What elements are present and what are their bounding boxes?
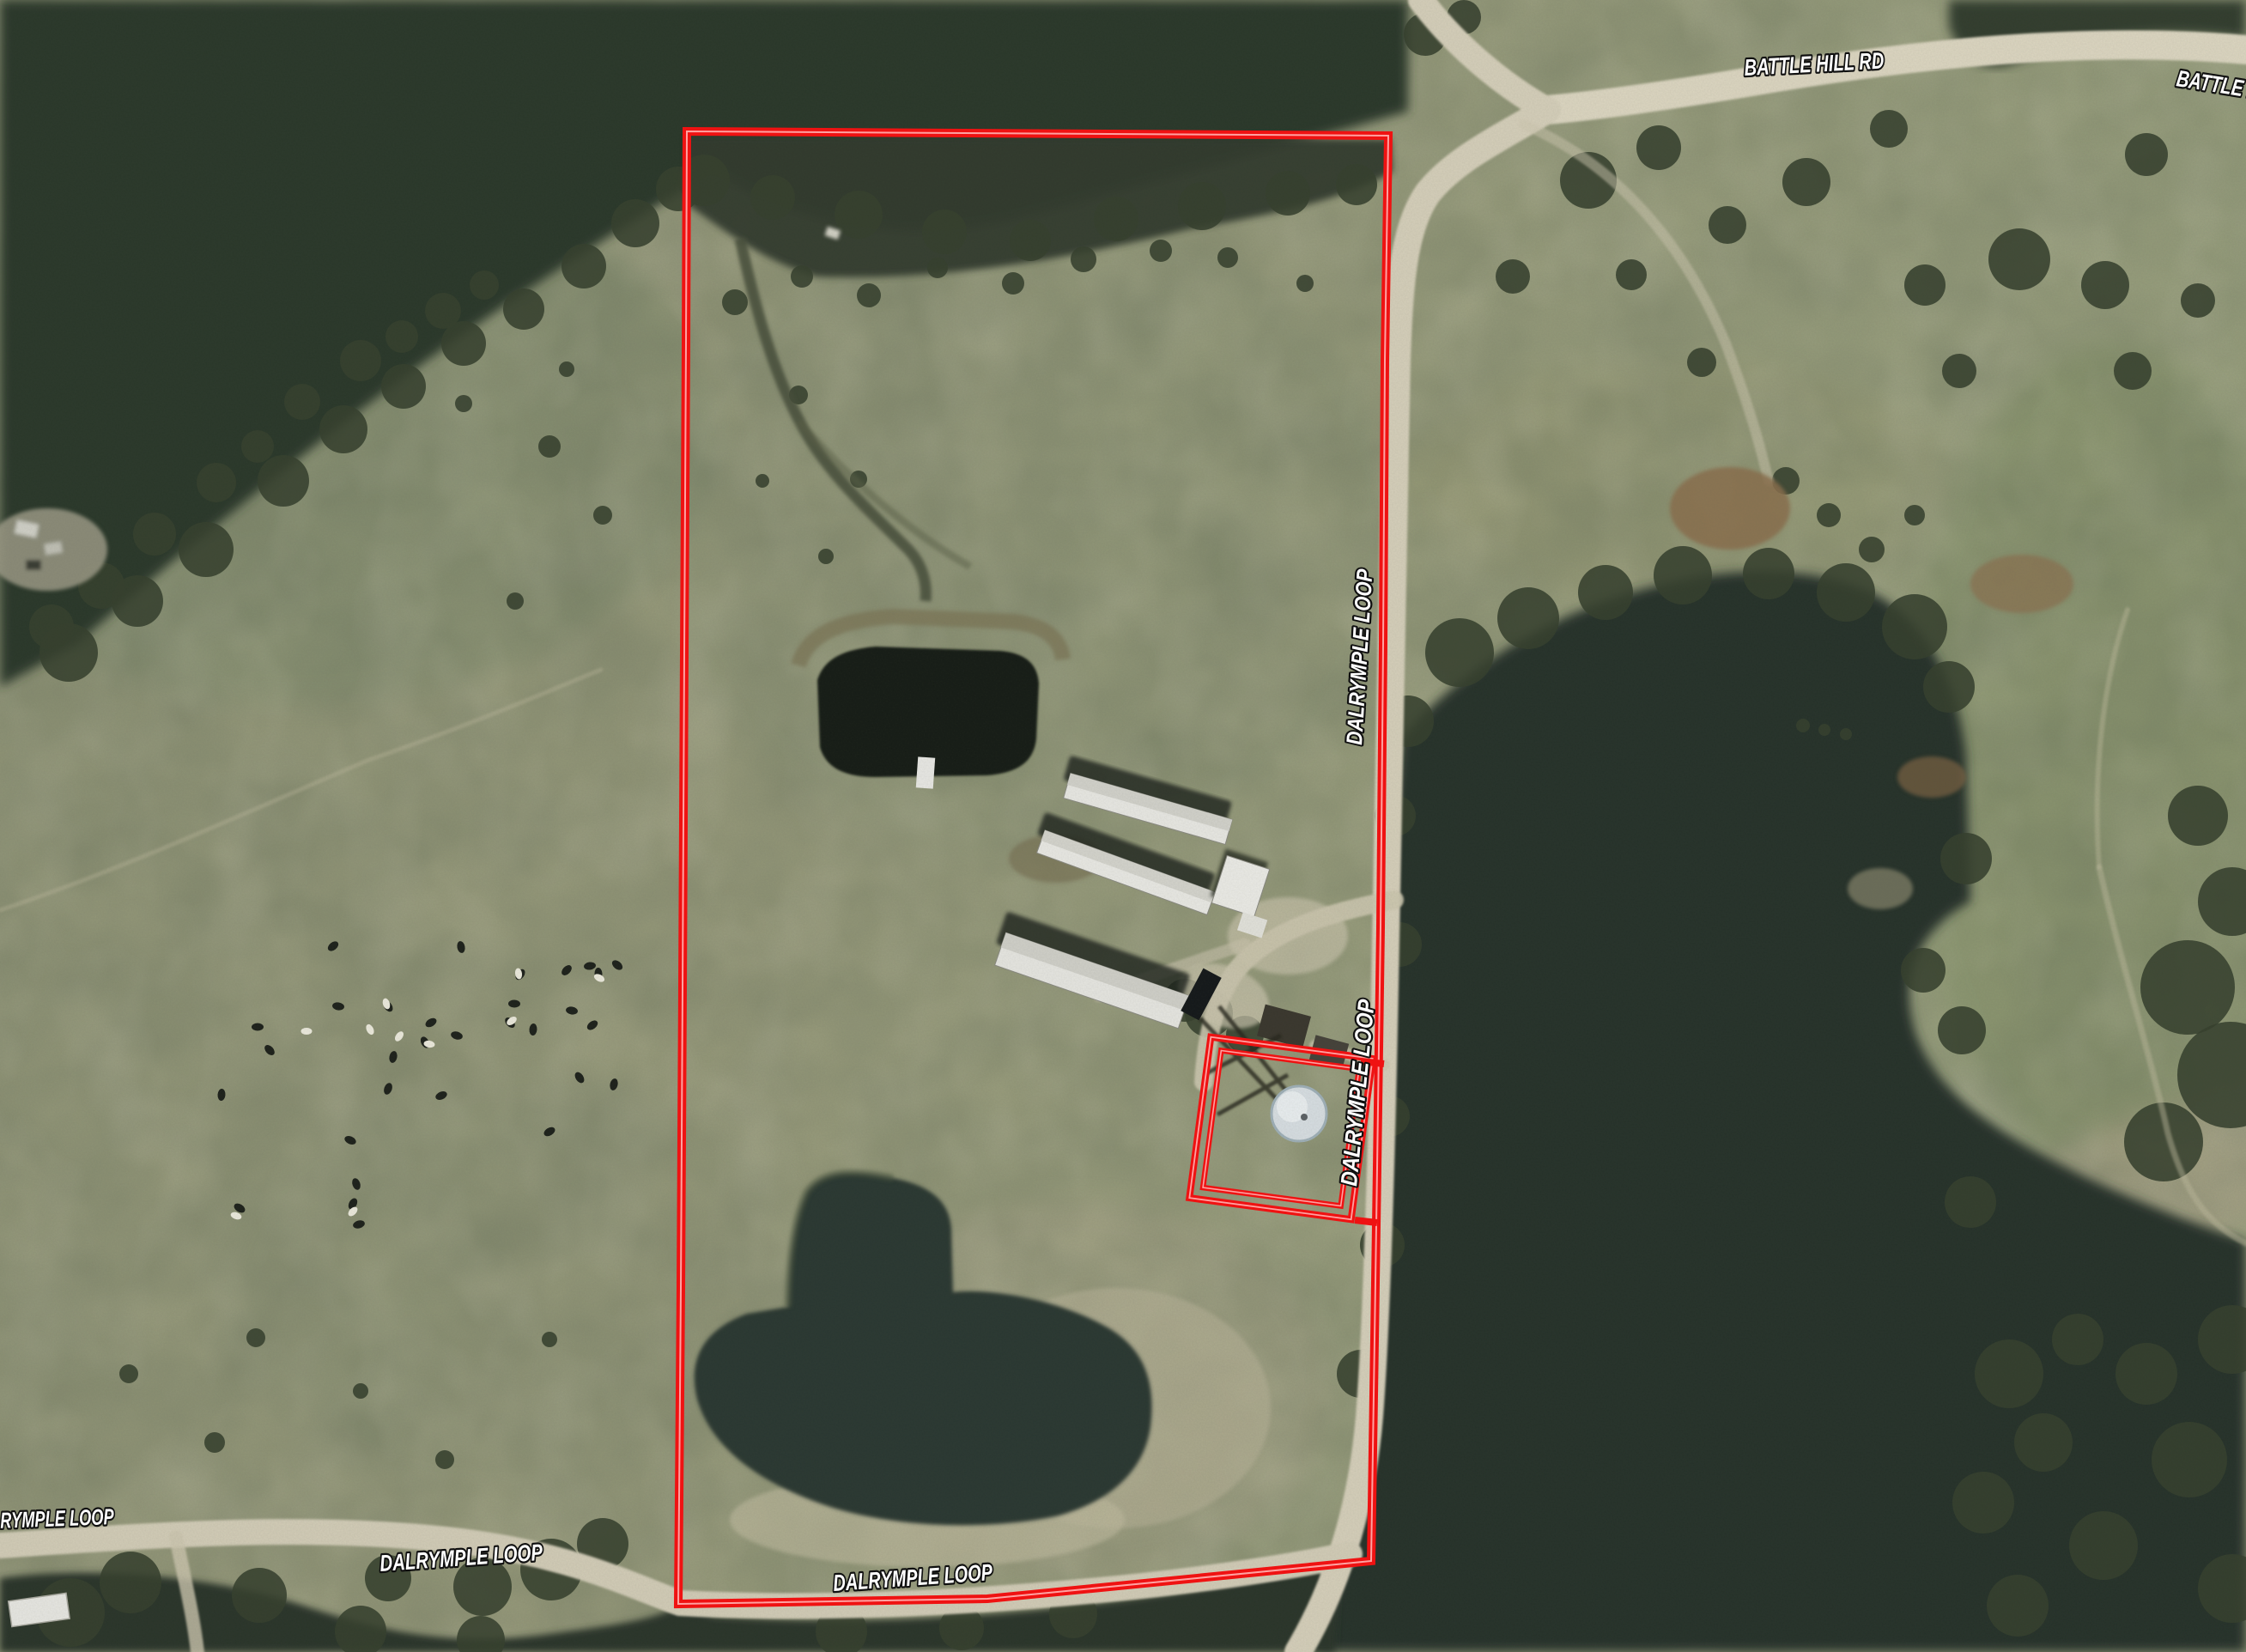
road-label-dalrymple-loop-far-left-clipped: DALRYMPLE LOOP xyxy=(0,1503,115,1534)
imagery-grain xyxy=(0,0,2246,1652)
aerial-map: BATTLE HILL RD BATTLE HILL RD DALRYMPLE … xyxy=(0,0,2246,1652)
screenshot: BATTLE HILL RD BATTLE HILL RD DALRYMPLE … xyxy=(0,0,2246,1652)
exclusion-connector-bottom xyxy=(1355,1220,1377,1223)
